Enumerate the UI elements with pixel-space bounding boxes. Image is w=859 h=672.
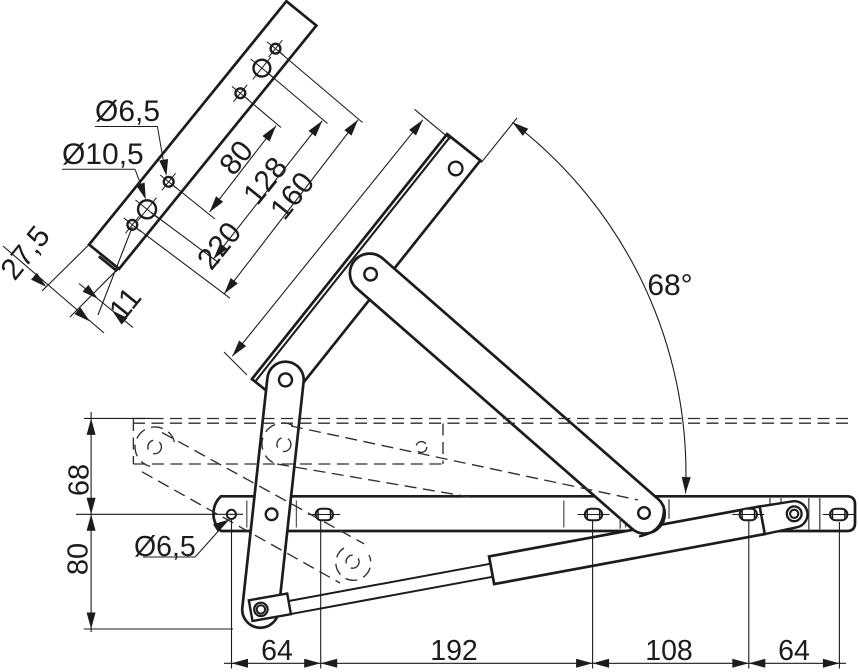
svg-text:108: 108 xyxy=(645,635,693,667)
svg-text:68: 68 xyxy=(64,464,96,496)
svg-text:68°: 68° xyxy=(647,269,692,302)
svg-text:64: 64 xyxy=(261,635,293,667)
svg-text:192: 192 xyxy=(430,635,478,667)
svg-text:64: 64 xyxy=(778,635,810,667)
svg-text:Ø6,5: Ø6,5 xyxy=(95,95,160,128)
svg-text:Ø6,5: Ø6,5 xyxy=(134,531,196,563)
svg-text:80: 80 xyxy=(63,543,95,575)
svg-text:Ø10,5: Ø10,5 xyxy=(62,138,144,171)
